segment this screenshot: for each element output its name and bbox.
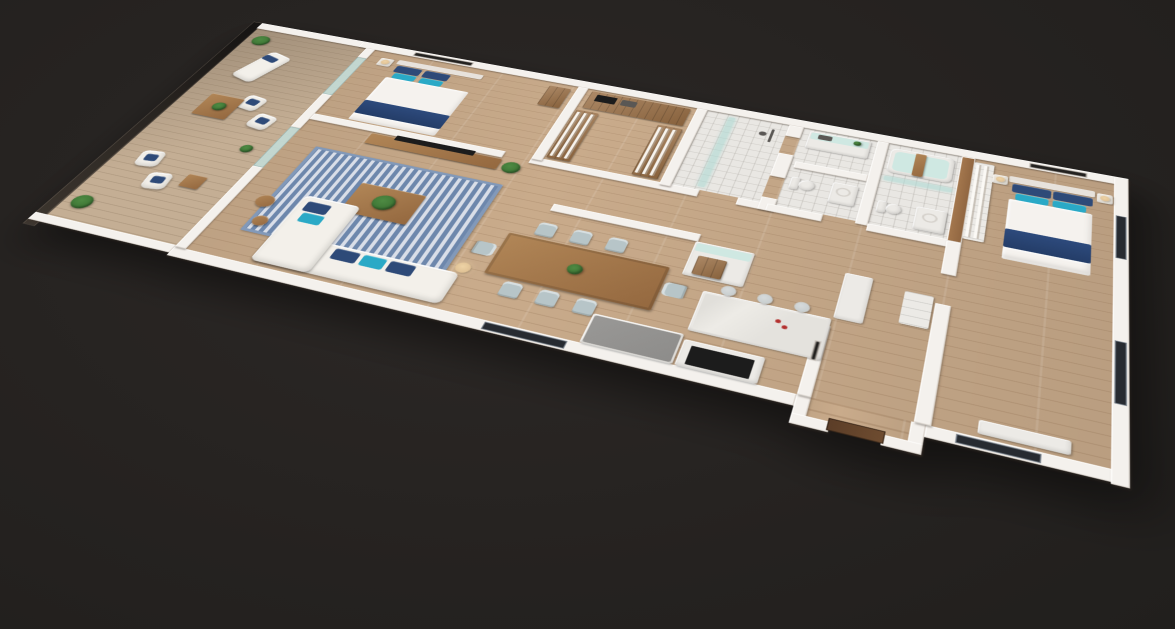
floor-plan: [31, 28, 1114, 487]
master-east-window-1: [1115, 215, 1126, 260]
master-east-window-2: [1114, 340, 1127, 406]
scene-background: [0, 0, 1175, 629]
hall-linen-stack: [898, 291, 934, 330]
